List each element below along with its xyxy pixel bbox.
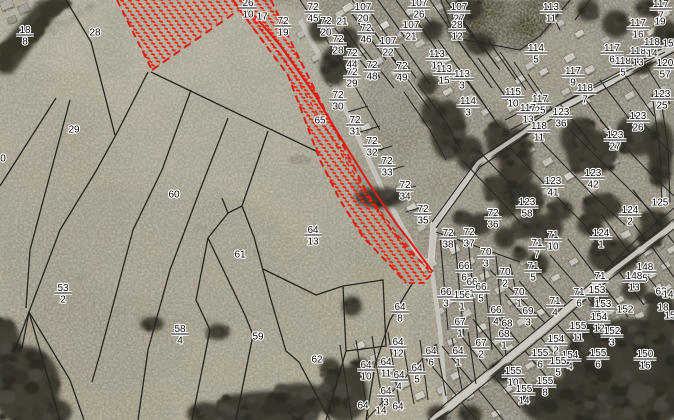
svg-text:13: 13 xyxy=(628,283,640,294)
svg-text:5: 5 xyxy=(530,273,536,284)
svg-text:46: 46 xyxy=(360,35,372,46)
svg-text:2: 2 xyxy=(502,279,508,290)
svg-text:1: 1 xyxy=(501,341,507,352)
svg-text:33: 33 xyxy=(381,168,393,179)
svg-text:14: 14 xyxy=(662,290,674,301)
svg-text:2: 2 xyxy=(478,350,484,361)
svg-text:26: 26 xyxy=(413,10,425,21)
svg-text:28: 28 xyxy=(89,28,101,39)
svg-text:15: 15 xyxy=(662,39,674,50)
svg-text:61: 61 xyxy=(234,250,246,261)
svg-text:6: 6 xyxy=(537,360,543,371)
svg-text:12: 12 xyxy=(451,32,463,43)
svg-text:9: 9 xyxy=(570,78,576,89)
svg-text:15: 15 xyxy=(438,76,450,87)
svg-text:2: 2 xyxy=(627,217,633,228)
svg-text:10: 10 xyxy=(507,99,519,110)
svg-text:16: 16 xyxy=(632,30,644,41)
svg-text:45: 45 xyxy=(307,14,319,25)
svg-text:5: 5 xyxy=(533,55,539,66)
svg-text:28: 28 xyxy=(332,46,344,57)
svg-text:8: 8 xyxy=(397,314,403,325)
svg-text:49: 49 xyxy=(396,73,408,84)
svg-text:42: 42 xyxy=(587,180,599,191)
svg-text:19: 19 xyxy=(277,28,289,39)
svg-text:41: 41 xyxy=(547,188,559,199)
svg-text:29: 29 xyxy=(68,125,80,136)
svg-text:64: 64 xyxy=(357,401,369,412)
svg-text:13: 13 xyxy=(307,237,319,248)
svg-text:11: 11 xyxy=(546,14,557,25)
svg-text:4: 4 xyxy=(177,336,183,347)
svg-text:1: 1 xyxy=(455,358,461,369)
svg-text:2: 2 xyxy=(60,295,66,306)
svg-text:125: 125 xyxy=(652,198,669,209)
svg-text:14: 14 xyxy=(518,396,530,407)
svg-text:21: 21 xyxy=(336,17,348,28)
svg-text:16: 16 xyxy=(639,361,651,372)
svg-text:8: 8 xyxy=(542,388,548,399)
svg-text:3: 3 xyxy=(609,338,615,349)
svg-text:1: 1 xyxy=(469,289,475,300)
svg-text:8: 8 xyxy=(22,37,28,48)
svg-text:35: 35 xyxy=(417,216,429,227)
svg-text:64: 64 xyxy=(392,402,404,413)
svg-text:37: 37 xyxy=(463,239,475,250)
svg-text:30: 30 xyxy=(332,102,344,113)
svg-text:6: 6 xyxy=(428,358,434,369)
svg-text:19: 19 xyxy=(654,17,666,28)
svg-text:4: 4 xyxy=(396,382,402,393)
svg-text:3: 3 xyxy=(459,81,465,92)
svg-text:1: 1 xyxy=(598,240,604,251)
svg-text:6: 6 xyxy=(595,360,601,371)
svg-text:4: 4 xyxy=(493,317,499,328)
svg-text:0: 0 xyxy=(0,154,6,165)
svg-text:6: 6 xyxy=(576,299,582,310)
svg-text:60: 60 xyxy=(168,190,180,201)
svg-text:1: 1 xyxy=(457,329,463,340)
svg-text:10: 10 xyxy=(360,372,372,383)
svg-text:12: 12 xyxy=(392,349,404,360)
svg-text:59: 59 xyxy=(252,332,264,343)
svg-text:4: 4 xyxy=(552,308,558,319)
svg-text:32: 32 xyxy=(366,148,378,159)
svg-text:34: 34 xyxy=(399,192,411,203)
svg-text:20: 20 xyxy=(320,28,332,39)
svg-text:29: 29 xyxy=(346,79,358,90)
svg-text:65: 65 xyxy=(314,116,326,127)
svg-text:48: 48 xyxy=(366,72,378,83)
svg-text:3: 3 xyxy=(443,299,449,310)
svg-text:15: 15 xyxy=(664,311,674,322)
svg-text:10: 10 xyxy=(242,10,254,21)
svg-text:11: 11 xyxy=(573,333,584,344)
svg-text:5: 5 xyxy=(620,68,626,79)
svg-text:38: 38 xyxy=(442,240,454,251)
svg-text:21: 21 xyxy=(405,32,417,43)
svg-text:14: 14 xyxy=(375,406,387,417)
svg-text:13: 13 xyxy=(632,58,644,69)
svg-text:22: 22 xyxy=(382,48,394,59)
svg-text:44: 44 xyxy=(346,60,358,71)
svg-text:68: 68 xyxy=(501,319,513,330)
svg-text:11: 11 xyxy=(381,369,392,380)
svg-text:1: 1 xyxy=(516,299,522,310)
svg-text:7: 7 xyxy=(582,95,588,106)
svg-text:1: 1 xyxy=(459,302,465,313)
svg-text:25: 25 xyxy=(534,106,546,117)
svg-text:152: 152 xyxy=(617,305,634,316)
svg-text:57: 57 xyxy=(659,70,671,81)
svg-text:3: 3 xyxy=(483,259,489,270)
svg-text:10: 10 xyxy=(547,242,559,253)
svg-text:7: 7 xyxy=(534,250,540,261)
svg-text:25: 25 xyxy=(656,101,668,112)
svg-text:5: 5 xyxy=(642,274,648,285)
svg-text:5: 5 xyxy=(414,375,420,386)
svg-text:62: 62 xyxy=(311,355,323,366)
svg-text:36: 36 xyxy=(487,220,499,231)
svg-text:3: 3 xyxy=(465,108,471,119)
svg-text:2: 2 xyxy=(553,346,559,357)
svg-text:27: 27 xyxy=(609,142,621,153)
svg-text:26: 26 xyxy=(632,123,644,134)
svg-text:31: 31 xyxy=(349,127,361,138)
svg-text:58: 58 xyxy=(521,209,533,220)
svg-text:36: 36 xyxy=(555,119,567,130)
svg-text:5: 5 xyxy=(555,368,561,379)
svg-text:11: 11 xyxy=(534,133,545,144)
svg-text:3: 3 xyxy=(525,318,531,329)
svg-text:17: 17 xyxy=(256,12,268,23)
svg-text:5: 5 xyxy=(478,294,484,305)
